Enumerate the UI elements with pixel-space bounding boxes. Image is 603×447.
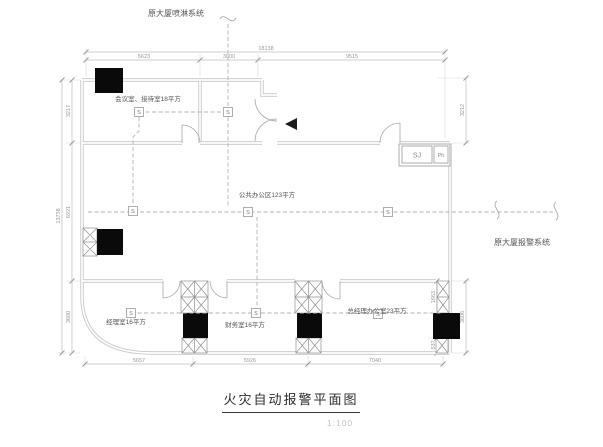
- room-label-meeting: 会议室、接待室18平方: [115, 94, 181, 103]
- dim-bottom-3: 7040: [369, 358, 381, 364]
- columns: [95, 68, 460, 339]
- break-symbol-right-2: [554, 202, 558, 220]
- alarm-circuit-dashed: [88, 24, 553, 313]
- dim-right-3: 3606: [460, 311, 466, 323]
- dim-top-2: 3000: [223, 54, 235, 60]
- detector-symbol: S: [246, 210, 250, 216]
- detector-symbol: S: [131, 209, 135, 215]
- room-label-finance: 财务室16平方: [225, 320, 265, 329]
- dim-right-2: 637: [431, 340, 437, 349]
- dim-right-1: 1663: [431, 291, 437, 303]
- dim-top-1: 5623: [138, 54, 150, 60]
- detector-symbol: S: [254, 311, 258, 317]
- drawing-title: 火灾自动报警平面图: [222, 389, 360, 413]
- control-devices: SJ Ph: [399, 144, 450, 166]
- break-symbol-right-1: [495, 201, 499, 219]
- drawing-scale: 1:100: [308, 418, 372, 428]
- device-ph-label: Ph: [438, 153, 445, 159]
- hatched-wall-segments: [83, 228, 449, 353]
- dim-left-2: 6921: [66, 206, 72, 218]
- dim-right-top: 3212: [460, 104, 466, 116]
- detector-symbol: S: [137, 110, 141, 116]
- break-symbol-top: [220, 17, 236, 21]
- floor-plan-canvas: S S S S S S S S SJ Ph 会议室、接待室18平方 公共办公区1…: [0, 0, 603, 447]
- alarm-system-label: 原大厦报警系统: [494, 237, 550, 247]
- dim-bottom-1: 5657: [133, 358, 145, 364]
- dim-top-overall: 18138: [258, 46, 273, 52]
- smoke-detectors: S S S S S S S S: [127, 108, 393, 319]
- dim-left-1: 3217: [66, 105, 72, 117]
- detector-symbol: S: [129, 311, 133, 317]
- dim-top-3: 9515: [346, 54, 358, 60]
- dim-left-3: 3600: [66, 311, 72, 323]
- room-label-gm-office: 总经理办公室23平方: [347, 306, 407, 315]
- system-annotations: 原大厦喷淋系统 原大厦报警系统: [148, 8, 550, 247]
- dim-left-overall: 13738: [56, 208, 62, 223]
- room-labels: 会议室、接待室18平方 公共办公区123平方 经理室16平方 财务室16平方 总…: [106, 94, 407, 329]
- room-label-open-office: 公共办公区123平方: [239, 190, 296, 199]
- floor-plan-drawing: S S S S S S S S SJ Ph 会议室、接待室18平方 公共办公区1…: [0, 0, 603, 447]
- room-label-manager: 经理室16平方: [106, 317, 146, 326]
- device-sj-label: SJ: [413, 153, 421, 160]
- dim-bottom-2: 5926: [244, 358, 256, 364]
- detector-symbol: S: [226, 110, 230, 116]
- detector-symbol: S: [386, 210, 390, 216]
- sprinkler-system-label: 原大厦喷淋系统: [148, 8, 204, 18]
- entrance-arrow-icon: [285, 118, 297, 130]
